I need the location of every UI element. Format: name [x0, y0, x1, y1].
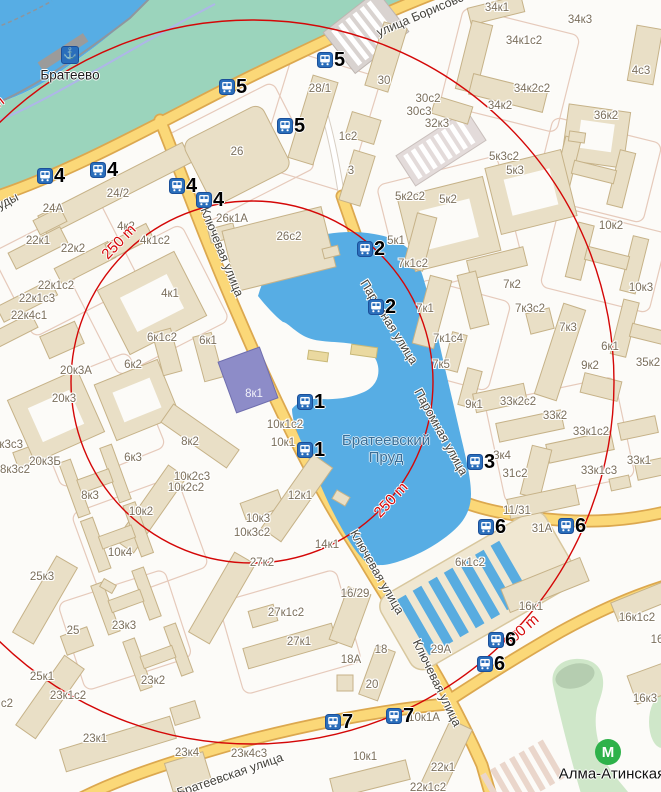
bus-stop-6[interactable]: 6 [558, 518, 586, 534]
bus-stop-number: 2 [374, 241, 385, 257]
bus-icon [467, 454, 483, 470]
bus-stop-number: 5 [334, 52, 345, 68]
bus-stop-number: 4 [107, 162, 118, 178]
bus-stop-4[interactable]: 4 [169, 178, 197, 194]
bus-icon [90, 162, 106, 178]
bus-stop-1[interactable]: 1 [297, 394, 325, 410]
bus-icon [357, 241, 373, 257]
bus-stop-number: 5 [236, 79, 247, 95]
bus-stop-3[interactable]: 3 [467, 454, 495, 470]
bus-icon [169, 178, 185, 194]
bus-stop-5[interactable]: 5 [219, 79, 247, 95]
bus-stop-number: 6 [575, 518, 586, 534]
bus-stop-number: 7 [342, 714, 353, 730]
map-canvas[interactable]: Братеево Братеевский Пруд Алма-Атинская … [0, 0, 661, 792]
bus-icon [368, 299, 384, 315]
bus-stop-7[interactable]: 7 [386, 708, 414, 724]
bus-stop-5[interactable]: 5 [317, 52, 345, 68]
bus-stop-7[interactable]: 7 [325, 714, 353, 730]
bus-stop-5[interactable]: 5 [277, 118, 305, 134]
bus-stop-6[interactable]: 6 [477, 656, 505, 672]
bus-stop-4[interactable]: 4 [196, 192, 224, 208]
bus-icon [219, 79, 235, 95]
bus-icon [277, 118, 293, 134]
bus-icon [488, 632, 504, 648]
bus-stop-number: 2 [385, 299, 396, 315]
bus-stop-number: 4 [213, 192, 224, 208]
bus-stop-number: 7 [403, 708, 414, 724]
bus-icon [558, 518, 574, 534]
bus-icon [297, 442, 313, 458]
bus-stop-6[interactable]: 6 [488, 632, 516, 648]
bus-icon [477, 656, 493, 672]
bus-stop-number: 6 [505, 632, 516, 648]
bus-icon [386, 708, 402, 724]
metro-icon[interactable]: М [595, 739, 621, 765]
bus-icon [317, 52, 333, 68]
pier-anchor-icon[interactable]: ⚓ [61, 46, 79, 64]
bus-stop-2[interactable]: 2 [357, 241, 385, 257]
bus-stop-number: 4 [54, 168, 65, 184]
bus-stop-6[interactable]: 6 [478, 519, 506, 535]
bus-icon [325, 714, 341, 730]
bus-stop-number: 1 [314, 394, 325, 410]
bus-stop-number: 3 [484, 454, 495, 470]
bus-icon [297, 394, 313, 410]
bus-stop-number: 6 [495, 519, 506, 535]
bus-stop-number: 1 [314, 442, 325, 458]
map-base [0, 0, 661, 792]
bus-icon [478, 519, 494, 535]
bus-icon [196, 192, 212, 208]
bus-icon [37, 168, 53, 184]
bus-stop-1[interactable]: 1 [297, 442, 325, 458]
bus-stop-4[interactable]: 4 [37, 168, 65, 184]
bus-stop-number: 5 [294, 118, 305, 134]
bus-stop-4[interactable]: 4 [90, 162, 118, 178]
bus-stop-2[interactable]: 2 [368, 299, 396, 315]
bus-stop-number: 6 [494, 656, 505, 672]
